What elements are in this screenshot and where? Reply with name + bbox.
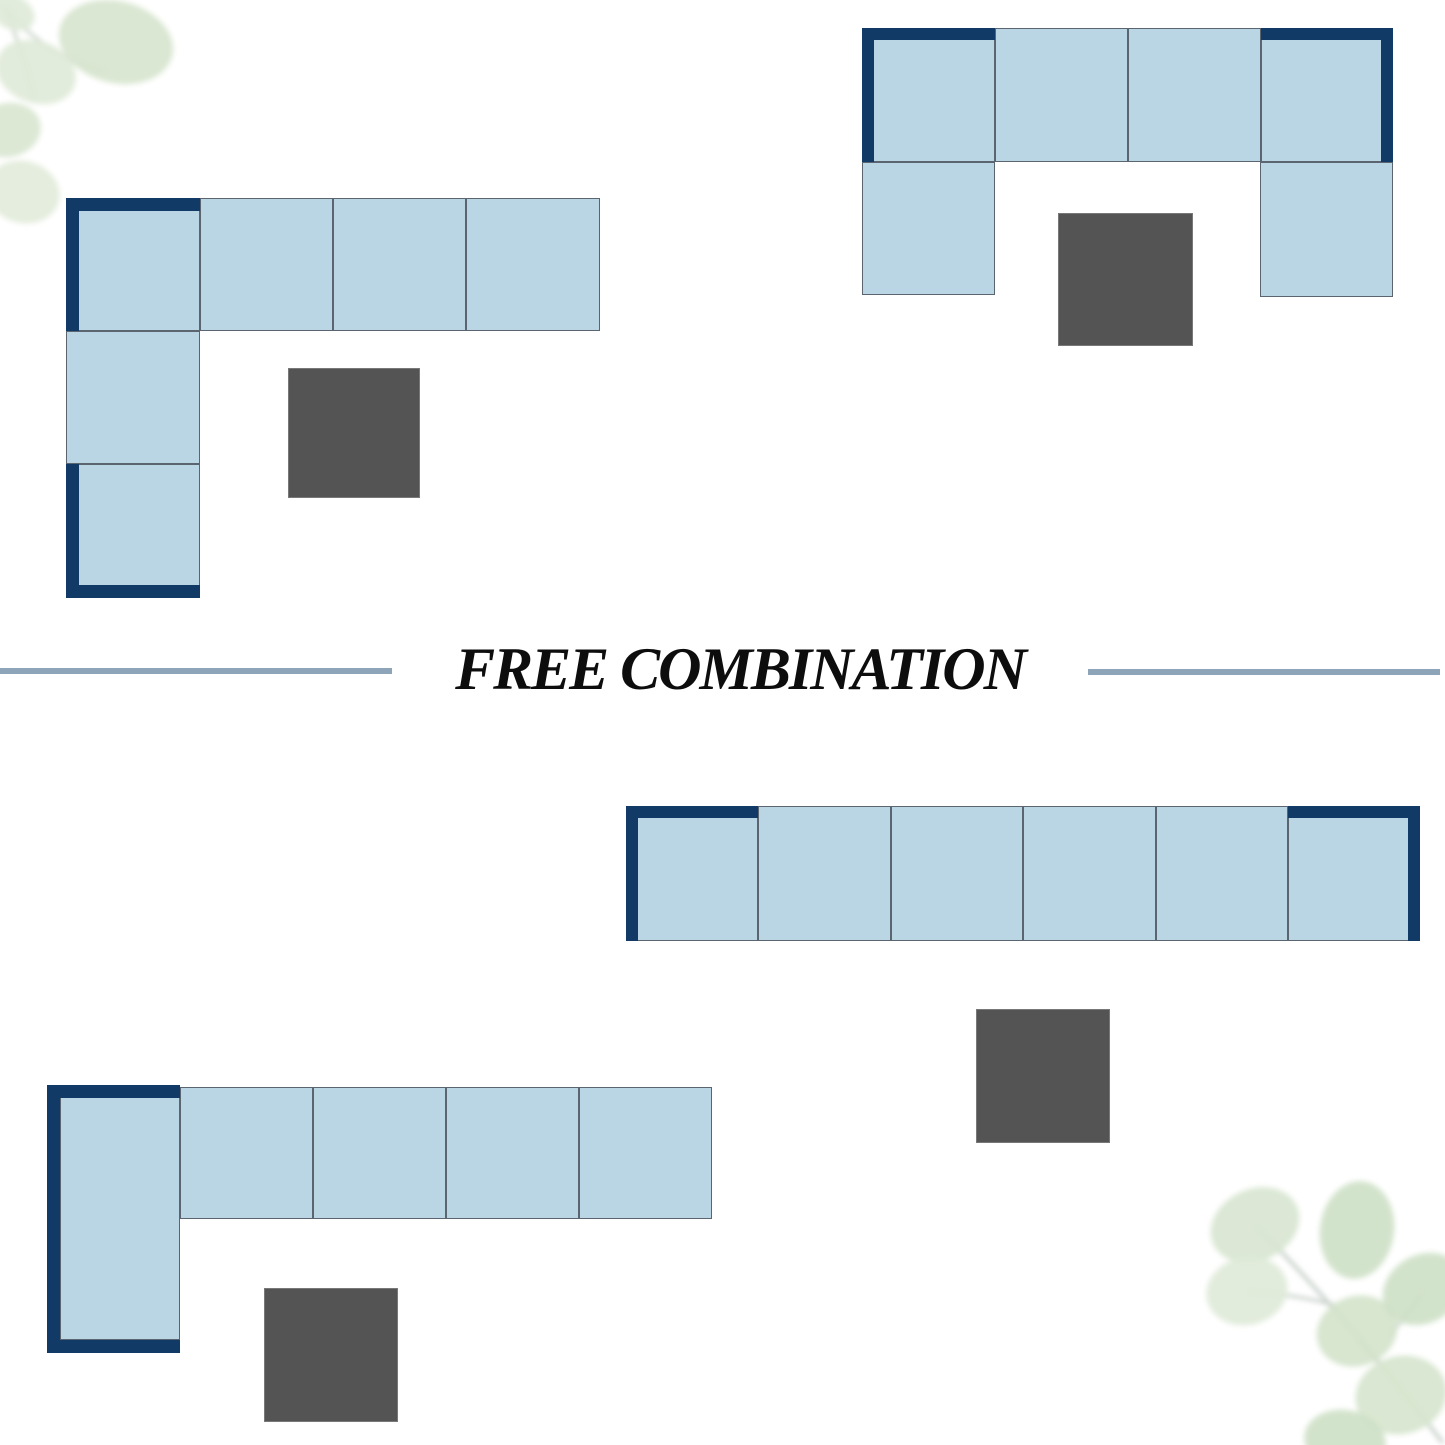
sofa-armrest [862, 28, 995, 40]
sofa-armrest [66, 464, 79, 598]
seat-cushion [862, 28, 995, 162]
sofa-armrest [1261, 28, 1393, 40]
seat-cushion [1288, 806, 1420, 941]
sofa-armrest [626, 806, 638, 941]
seat-cushion [626, 806, 758, 941]
seat-cushion [995, 28, 1128, 162]
sofa-armrest [66, 198, 200, 211]
ottoman-table [288, 368, 420, 498]
seat-cushion [446, 1087, 579, 1219]
ottoman-table [1058, 213, 1193, 346]
sofa-armrest [862, 28, 874, 162]
seat-cushion [313, 1087, 446, 1219]
sofa-armrest [626, 806, 758, 818]
seat-cushion [66, 331, 200, 464]
seat-cushion [1023, 806, 1156, 941]
seat-cushion [1261, 28, 1393, 162]
sofa-armrest [66, 198, 79, 331]
eucalyptus-leaves-icon [0, 0, 200, 240]
sofa-armrest [47, 1085, 180, 1098]
seat-cushion [891, 806, 1023, 941]
ottoman-table [264, 1288, 398, 1422]
u-shape-sectional-top-right [0, 0, 1445, 1445]
seat-cushion [180, 1087, 313, 1219]
sofa-armrest [1408, 806, 1420, 941]
seat-cushion [1156, 806, 1288, 941]
corner-sectional-top-left [0, 0, 1445, 1445]
seat-cushion [862, 162, 995, 295]
seat-cushion [579, 1087, 712, 1219]
divider-line-right [1088, 669, 1440, 675]
seat-cushion [758, 806, 891, 941]
seat-cushion [60, 1087, 180, 1340]
sofa-armrest [47, 1085, 60, 1353]
chaise-sectional-bottom-left [0, 0, 1445, 1445]
sofa-armrest [1381, 28, 1393, 162]
seat-cushion [1260, 162, 1393, 297]
straight-sofa-bottom-right [0, 0, 1445, 1445]
sofa-armrest [66, 585, 200, 598]
seat-cushion [466, 198, 600, 331]
seat-cushion [66, 464, 200, 598]
seat-cushion [66, 198, 200, 331]
divider-line-left [0, 668, 392, 674]
eucalyptus-branch-icon [1185, 1165, 1445, 1445]
seat-cushion [1128, 28, 1261, 162]
ottoman-table [976, 1009, 1110, 1143]
seat-cushion [333, 198, 466, 331]
section-title: FREE COMBINATION [392, 629, 1088, 709]
sofa-combination-infographic: FREE COMBINATION [0, 0, 1445, 1445]
seat-cushion [200, 198, 333, 331]
sofa-armrest [1288, 806, 1420, 818]
sofa-armrest [47, 1340, 180, 1353]
